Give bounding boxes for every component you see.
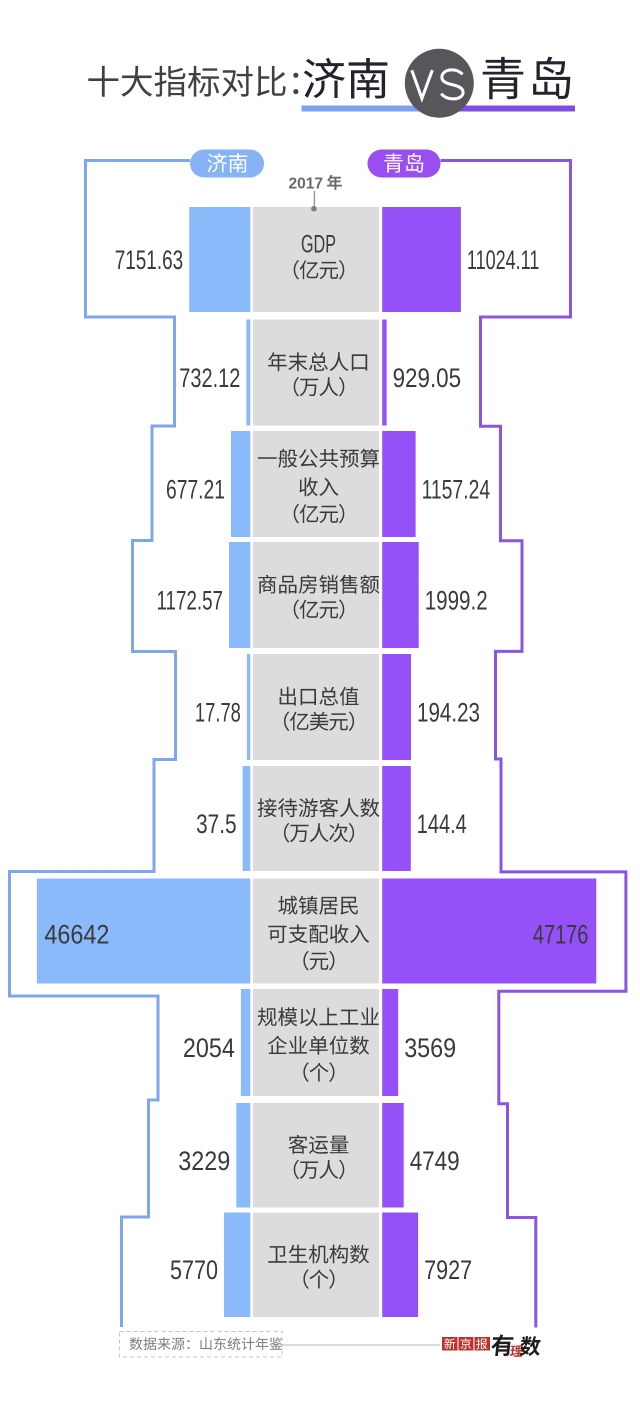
svg-text:677.21: 677.21 [166, 475, 225, 505]
svg-text:47176: 47176 [533, 920, 589, 950]
svg-text:17.78: 17.78 [195, 698, 241, 728]
svg-text:194.23: 194.23 [417, 698, 480, 728]
svg-text:732.12: 732.12 [179, 363, 240, 393]
svg-text:1157.24: 1157.24 [422, 475, 491, 505]
svg-text:4749: 4749 [410, 1146, 460, 1176]
svg-text:3569: 3569 [404, 1033, 456, 1063]
svg-text:2054: 2054 [183, 1033, 235, 1063]
svg-text:1999.2: 1999.2 [425, 586, 488, 616]
svg-text:11024.11: 11024.11 [467, 245, 540, 275]
svg-text:7151.63: 7151.63 [115, 245, 184, 275]
svg-text:5770: 5770 [170, 1255, 218, 1285]
svg-text:GDP: GDP [301, 231, 336, 259]
svg-text:144.4: 144.4 [417, 809, 467, 839]
svg-text:929.05: 929.05 [393, 363, 462, 393]
svg-text:46642: 46642 [44, 920, 109, 950]
svg-text:3229: 3229 [178, 1146, 230, 1176]
svg-text:7927: 7927 [424, 1255, 472, 1285]
svg-text:37.5: 37.5 [196, 809, 237, 839]
svg-text:2017: 2017 [289, 176, 323, 193]
svg-text:1172.57: 1172.57 [157, 586, 224, 616]
